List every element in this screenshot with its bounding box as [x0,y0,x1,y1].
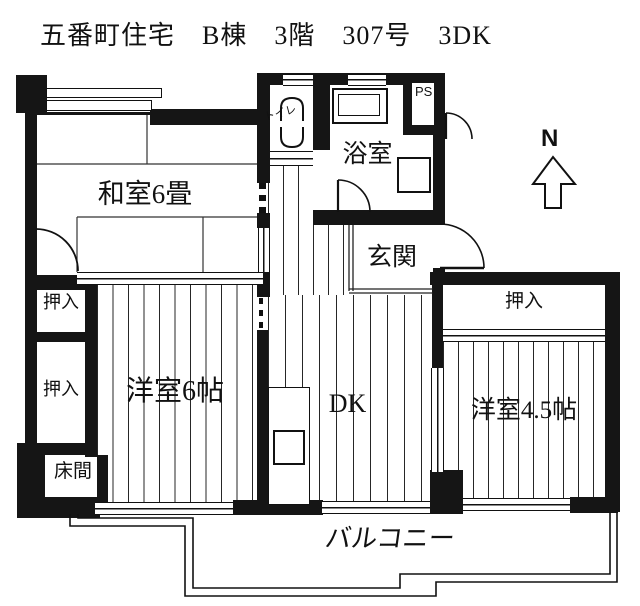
plan-title: 五番町住宅 B棟 3階 307号 3DK [40,22,492,49]
room-label-ps: PS [415,86,431,98]
room-label-dk: DK [320,390,375,417]
room-label-oshiire-right: 押入 [443,292,605,312]
room-label-tokonoma: 床間 [46,462,100,482]
room-label-washitsu: 和室6畳 [70,180,220,208]
ps-door [446,113,472,139]
room-label-bath: 浴室 [330,142,405,168]
north-arrow-icon [533,157,575,208]
room-label-balcony: バルコニー [293,525,487,552]
floor-plan: 五番町住宅 B棟 3階 307号 3DK 和室6畳 押入 押入 床間 洋室6帖 … [0,0,640,606]
room-label-western6: 洋室6帖 [90,377,260,406]
washitsu-door-arc [36,229,78,271]
room-label-western45: 洋室4.5帖 [443,398,605,424]
room-label-oshiire-top: 押入 [36,293,86,312]
bath-door [338,180,370,212]
compass-north-label: N [541,126,558,151]
room-label-oshiire-mid: 押入 [36,380,86,399]
entrance-door [440,224,484,268]
room-label-genkan: 玄関 [352,245,432,271]
